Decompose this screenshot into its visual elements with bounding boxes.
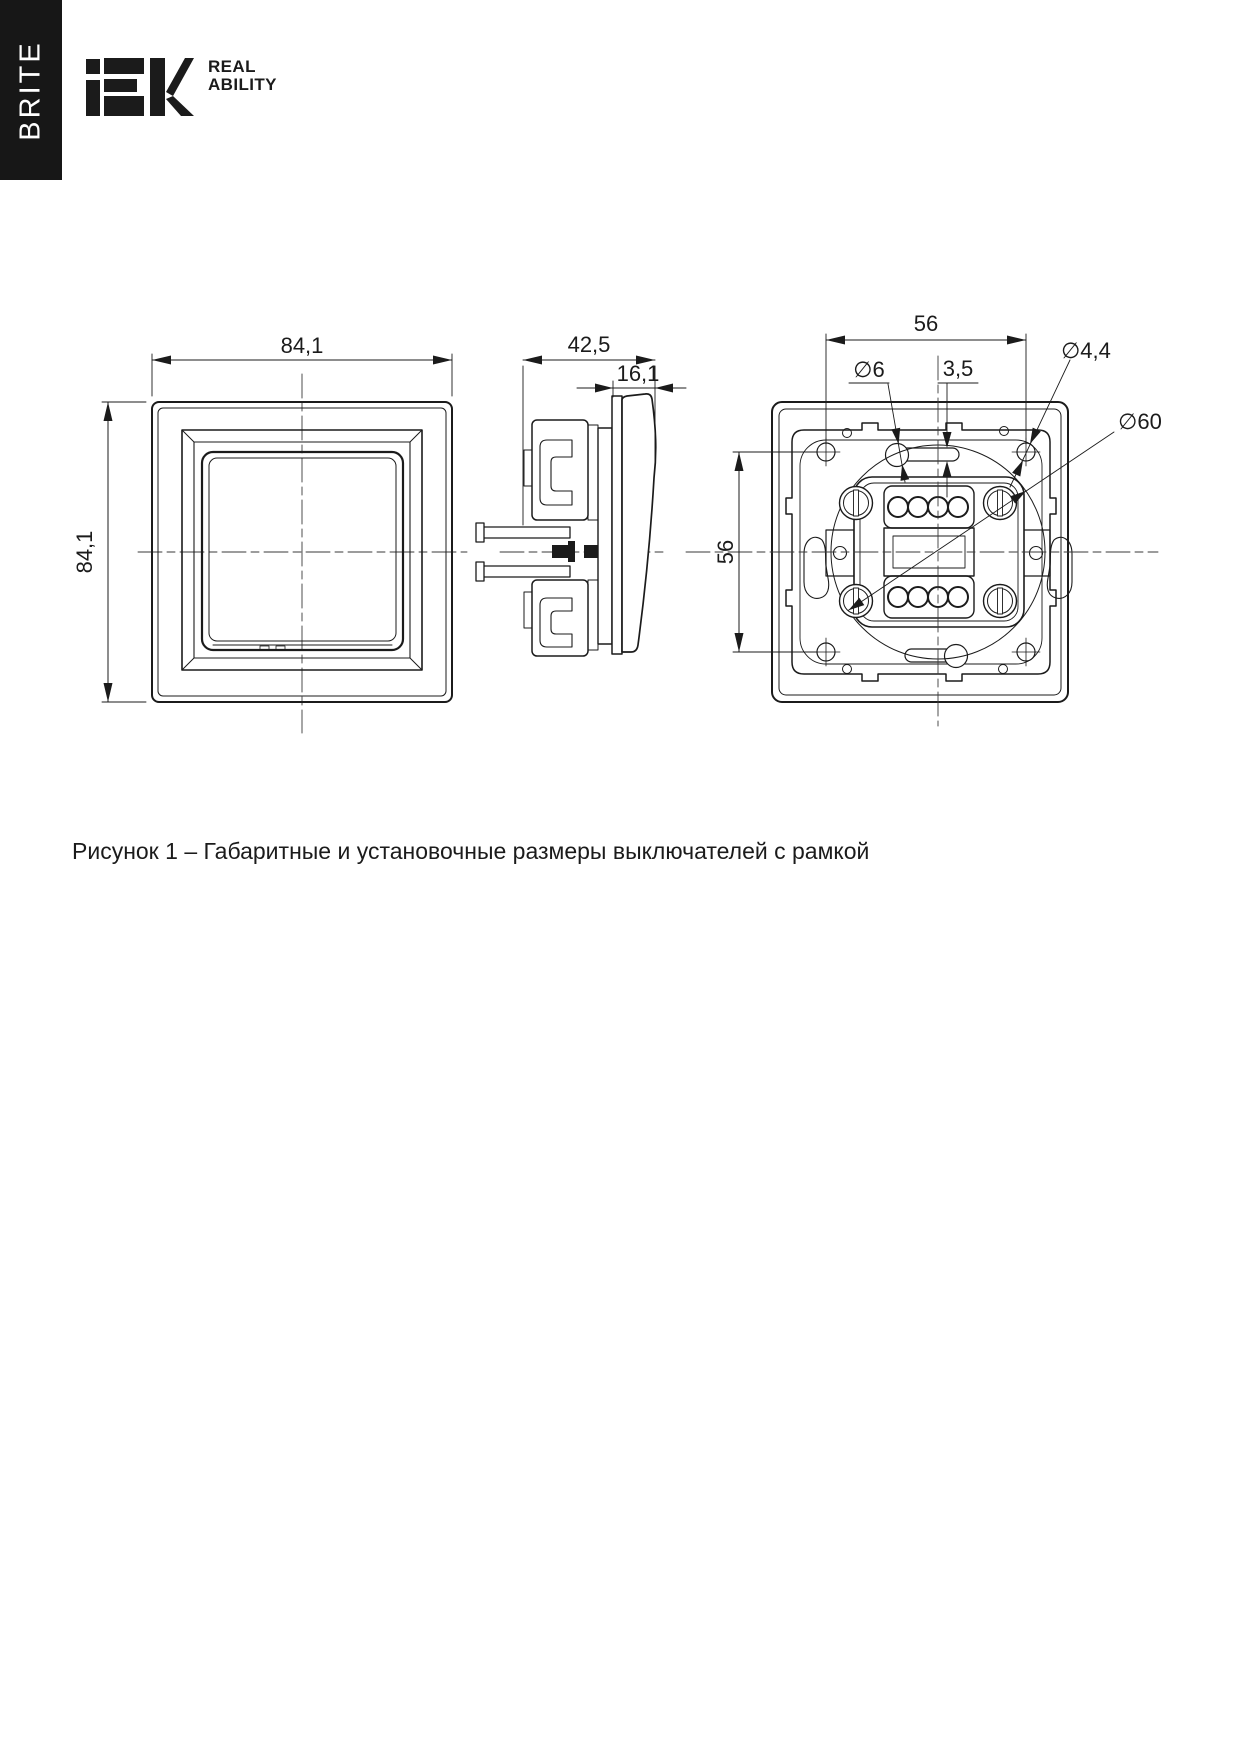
document-page: BRITE REAL ABILITY — [0, 0, 1241, 1752]
dim-back-hole-spacing-v: 56 — [713, 540, 739, 564]
side-view — [476, 356, 686, 657]
dim-side-front-depth: 16,1 — [617, 361, 660, 387]
label-slot-width: 3,5 — [943, 356, 974, 382]
dim-side-depth: 42,5 — [568, 332, 611, 358]
label-support-ring-diameter: ∅60 — [1118, 409, 1162, 435]
dim-back-hole-spacing-h: 56 — [914, 311, 938, 337]
dim-front-width: 84,1 — [281, 333, 324, 359]
label-screw-hole-diameter: ∅4,4 — [1061, 338, 1111, 364]
front-view — [102, 354, 467, 733]
label-slot-hole-diameter: ∅6 — [853, 357, 884, 383]
dim-front-height: 84,1 — [72, 531, 98, 574]
figure-caption: Рисунок 1 – Габаритные и установочные ра… — [72, 838, 869, 865]
technical-drawing — [0, 0, 1241, 900]
back-view — [686, 334, 1158, 726]
